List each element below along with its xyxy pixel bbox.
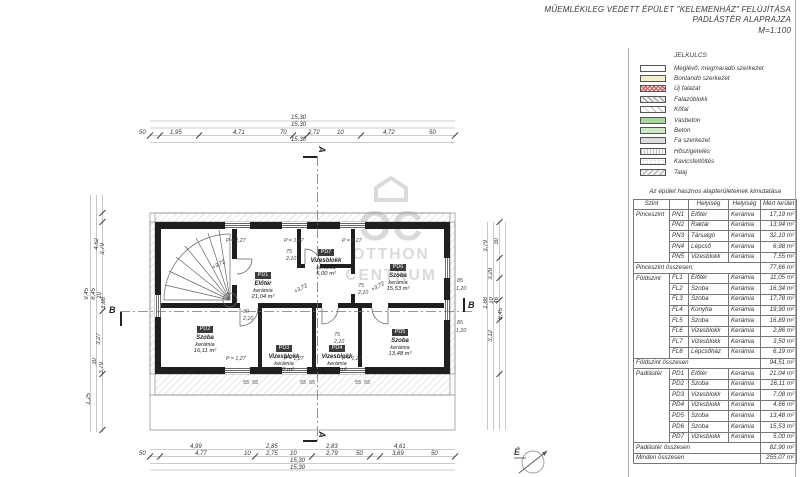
drawing-sheet: OC OTTHON CENTRUM MŰEMLÉKILEG VÉDETT ÉPÜ…	[0, 0, 800, 477]
room-label-pd2: PD2 Szoba kerámia 16,11 m²	[182, 317, 228, 354]
dim-label: 3,79	[100, 243, 106, 255]
dim-label: 1,20	[456, 329, 466, 334]
dim-label: 2,72	[308, 130, 320, 136]
section-marker-b-left: B	[109, 306, 116, 315]
section-marker-a-top: A	[317, 146, 326, 153]
dim-label: 85	[457, 321, 463, 326]
room-label-pd7: PD7 Vizesblokk kerámia 5,00 m²	[303, 240, 349, 277]
dim-label: 10	[290, 451, 297, 457]
thickness-label: 55	[364, 381, 370, 386]
door-dim: 75	[358, 284, 364, 289]
room-area: 4,66 m²	[314, 367, 360, 373]
dim-total: 15,30	[291, 137, 306, 143]
dim-label: 3,29	[488, 268, 494, 280]
room-label-pd5: PD5 Szoba kerámia 13,48 m²	[377, 320, 423, 357]
room-name: Szoba	[182, 335, 228, 342]
room-area: 7,08 m²	[261, 367, 307, 373]
room-area: 21,04 m²	[240, 294, 286, 300]
room-code: PD5	[392, 329, 408, 336]
dim-label: 3,79	[483, 240, 489, 252]
dim-label: 2,79	[326, 451, 338, 457]
room-label-pd4: PD4 Vizesblokk kerámia 4,66 m²	[314, 336, 360, 373]
dim-label: 50	[139, 451, 146, 457]
dim-label: 50	[139, 130, 146, 136]
dim-total: 15,30	[291, 122, 306, 128]
room-name: Vizesblokk	[314, 354, 360, 361]
dim-label: 8,45	[498, 308, 504, 320]
parapet-label: P = 1,27	[226, 357, 246, 362]
dim-label: 2,85	[266, 444, 278, 450]
dim-label: 4,71	[233, 130, 245, 136]
room-code: PD3	[276, 345, 292, 352]
thickness-label: 55	[309, 381, 315, 386]
dim-label: 2,83	[326, 444, 338, 450]
level-label: +3,72	[211, 259, 226, 271]
room-code: PD6	[390, 264, 406, 271]
plan-annotations: 50 1,95 4,71 70 2,72 10 4,72 50 15,30 15…	[0, 0, 800, 477]
room-code: PD2	[197, 326, 213, 333]
dim-label: 4,77	[195, 451, 207, 457]
room-name: Vizesblokk	[261, 354, 307, 361]
section-marker-b-right: B	[468, 301, 475, 310]
room-area: 13,48 m²	[377, 351, 423, 357]
door-dim: 75	[286, 250, 292, 255]
dim-label: 1,88	[101, 297, 107, 309]
door-dim: 90	[243, 310, 249, 315]
room-label-pd1: PD1 Előtér kerámia 21,04 m²	[240, 263, 286, 300]
dim-label: 50	[429, 130, 436, 136]
dim-label: 10	[337, 130, 344, 136]
dim-label: 3,69	[392, 451, 404, 457]
dim-label: 10	[244, 451, 251, 457]
dim-label: 30	[92, 358, 98, 365]
thickness-label: 55	[300, 381, 306, 386]
dim-label: 30	[494, 238, 500, 245]
dim-label: 1,95	[170, 130, 182, 136]
room-code: PD7	[318, 249, 334, 256]
door-dim: 2,10	[243, 317, 253, 322]
dim-total: 15,30	[290, 465, 305, 471]
door-dim: 2,10	[358, 291, 368, 296]
level-label: +3,72	[293, 283, 308, 295]
dim-label: 46	[494, 297, 500, 304]
dim-label: 3,79	[99, 362, 105, 374]
dim-label: 85	[457, 279, 463, 284]
thickness-label: 55	[355, 381, 361, 386]
room-code: PD1	[255, 272, 271, 279]
dim-label: 3,12	[488, 330, 494, 342]
thickness-label: 55	[252, 381, 258, 386]
parapet-label: P = 1,27	[226, 239, 246, 244]
thickness-label: 55	[243, 381, 249, 386]
door-dim: 2,10	[286, 257, 296, 262]
dim-label: 3,27	[96, 333, 102, 345]
room-label-pd6: PD6 Szoba kerámia 15,53 m²	[375, 255, 421, 292]
room-area: 16,11 m²	[182, 348, 228, 354]
room-area: 5,00 m²	[303, 271, 349, 277]
parapet-label: P = 1,27	[284, 239, 304, 244]
dim-total: 15,30	[291, 115, 306, 121]
dim-label: 50	[431, 451, 438, 457]
dim-total: 15,30	[290, 458, 305, 464]
room-code: PD4	[329, 345, 345, 352]
dim-label: 4,99	[190, 444, 202, 450]
dim-label: 1,20	[456, 287, 466, 292]
dim-label: 4,72	[383, 130, 395, 136]
room-name: Szoba	[377, 338, 423, 345]
dim-label: 9,45	[84, 288, 90, 300]
room-name: Előtér	[240, 281, 286, 288]
room-area: 15,53 m²	[375, 286, 421, 292]
dim-label: 4,61	[394, 444, 406, 450]
section-marker-a-bottom: A	[317, 431, 326, 438]
room-name: Vizesblokk	[303, 258, 349, 265]
room-name: Szoba	[375, 273, 421, 280]
dim-label: 70	[280, 130, 287, 136]
dim-label: 50	[356, 451, 363, 457]
dim-label: 1,25	[86, 393, 92, 405]
dim-label: 2,75	[266, 451, 278, 457]
room-label-pd3: PD3 Vizesblokk kerámia 7,08 m²	[261, 336, 307, 373]
north-label: É	[514, 447, 520, 457]
